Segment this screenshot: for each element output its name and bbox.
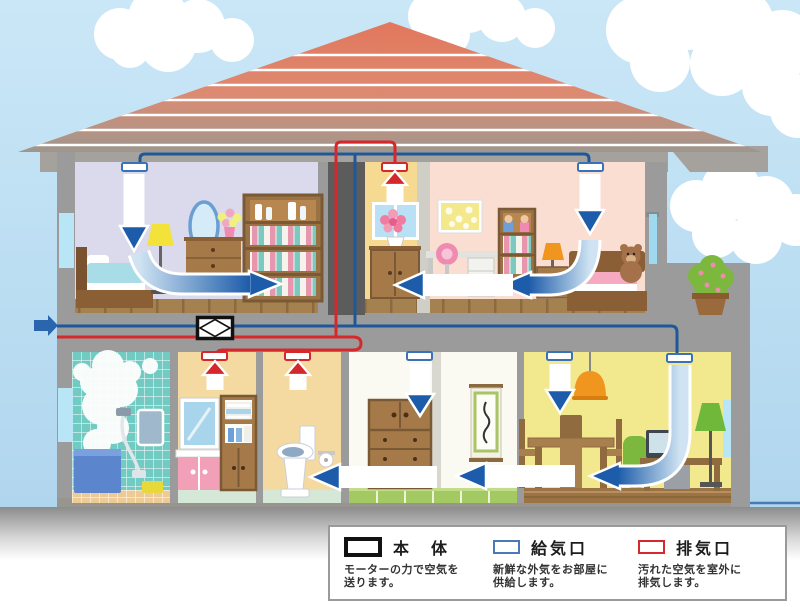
airflow-hall-to-toilet <box>310 464 437 490</box>
legend-item-main-unit: 本 体 モーターの力で空気を 送ります。 <box>344 535 492 590</box>
exhaust-vent-toilet <box>285 352 310 360</box>
legend-label: 排気口 <box>676 535 733 559</box>
left-wall-window-1f <box>58 388 73 442</box>
main-unit <box>198 318 233 339</box>
first-floor-right-wall <box>731 263 750 507</box>
supply-vent-living <box>667 354 692 362</box>
supply-vent-kids-room <box>578 163 603 171</box>
hanging-scroll <box>469 384 503 462</box>
bath-stool <box>142 481 163 493</box>
exhaust-vent-swatch-icon <box>638 540 665 554</box>
legend-desc-line2: 送ります。 <box>344 577 492 590</box>
legend-desc: 汚れた空気を室外に 排気します。 <box>638 564 786 590</box>
legend-label: 本 体 <box>393 535 450 559</box>
washroom-mirror <box>180 398 219 449</box>
legend-desc-line2: 排気します。 <box>638 577 786 590</box>
legend-box: 本 体 モーターの力で空気を 送ります。 給気口 新鮮な外気をお部屋に 供給しま… <box>328 525 787 601</box>
legend-desc: 新鮮な外気をお部屋に 供給します。 <box>493 564 641 590</box>
exhaust-vent-hallway <box>382 163 407 171</box>
hallway-floor <box>365 299 417 313</box>
legend-desc-line1: モーターの力で空気を <box>344 564 492 577</box>
supply-vent-japanese-room <box>407 352 432 360</box>
floor-band <box>57 313 731 352</box>
washroom-floor <box>178 490 256 503</box>
dining-floor <box>524 488 731 503</box>
house-illustration <box>0 0 800 607</box>
kids-doll-shelf <box>499 209 535 279</box>
left-wall-window-2f <box>59 213 74 268</box>
supply-vent-bedroom <box>122 163 147 171</box>
drain-pipe <box>649 214 657 264</box>
legend-desc: モーターの力で空気を 送ります。 <box>344 564 492 590</box>
washroom-vanity <box>176 450 221 490</box>
legend-item-exhaust-vent: 排気口 汚れた空気を室外に 排気します。 <box>638 535 786 590</box>
exhaust-vent-washroom <box>202 352 227 360</box>
ventilation-diagram: 本 体 モーターの力で空気を 送ります。 給気口 新鮮な外気をお部屋に 供給しま… <box>0 0 800 607</box>
wall-bath-washroom <box>170 352 178 503</box>
supply-vent-dining <box>547 352 572 360</box>
bathroom-mirror <box>138 410 163 445</box>
main-unit-swatch-icon <box>344 537 382 557</box>
legend-desc-line2: 供給します。 <box>493 577 641 590</box>
supply-vent-swatch-icon <box>493 540 520 554</box>
washroom-shelf <box>221 396 256 490</box>
duct-shaft <box>328 162 365 315</box>
legend-item-supply-vent: 給気口 新鮮な外気をお部屋に 供給します。 <box>493 535 641 590</box>
tatami-floor <box>349 488 517 503</box>
bathtub <box>74 449 121 493</box>
legend-label: 給気口 <box>531 535 588 559</box>
legend-desc-line1: 新鮮な外気をお部屋に <box>493 564 641 577</box>
legend-desc-line1: 汚れた空気を室外に <box>638 564 786 577</box>
kids-picture-frame <box>438 200 482 233</box>
